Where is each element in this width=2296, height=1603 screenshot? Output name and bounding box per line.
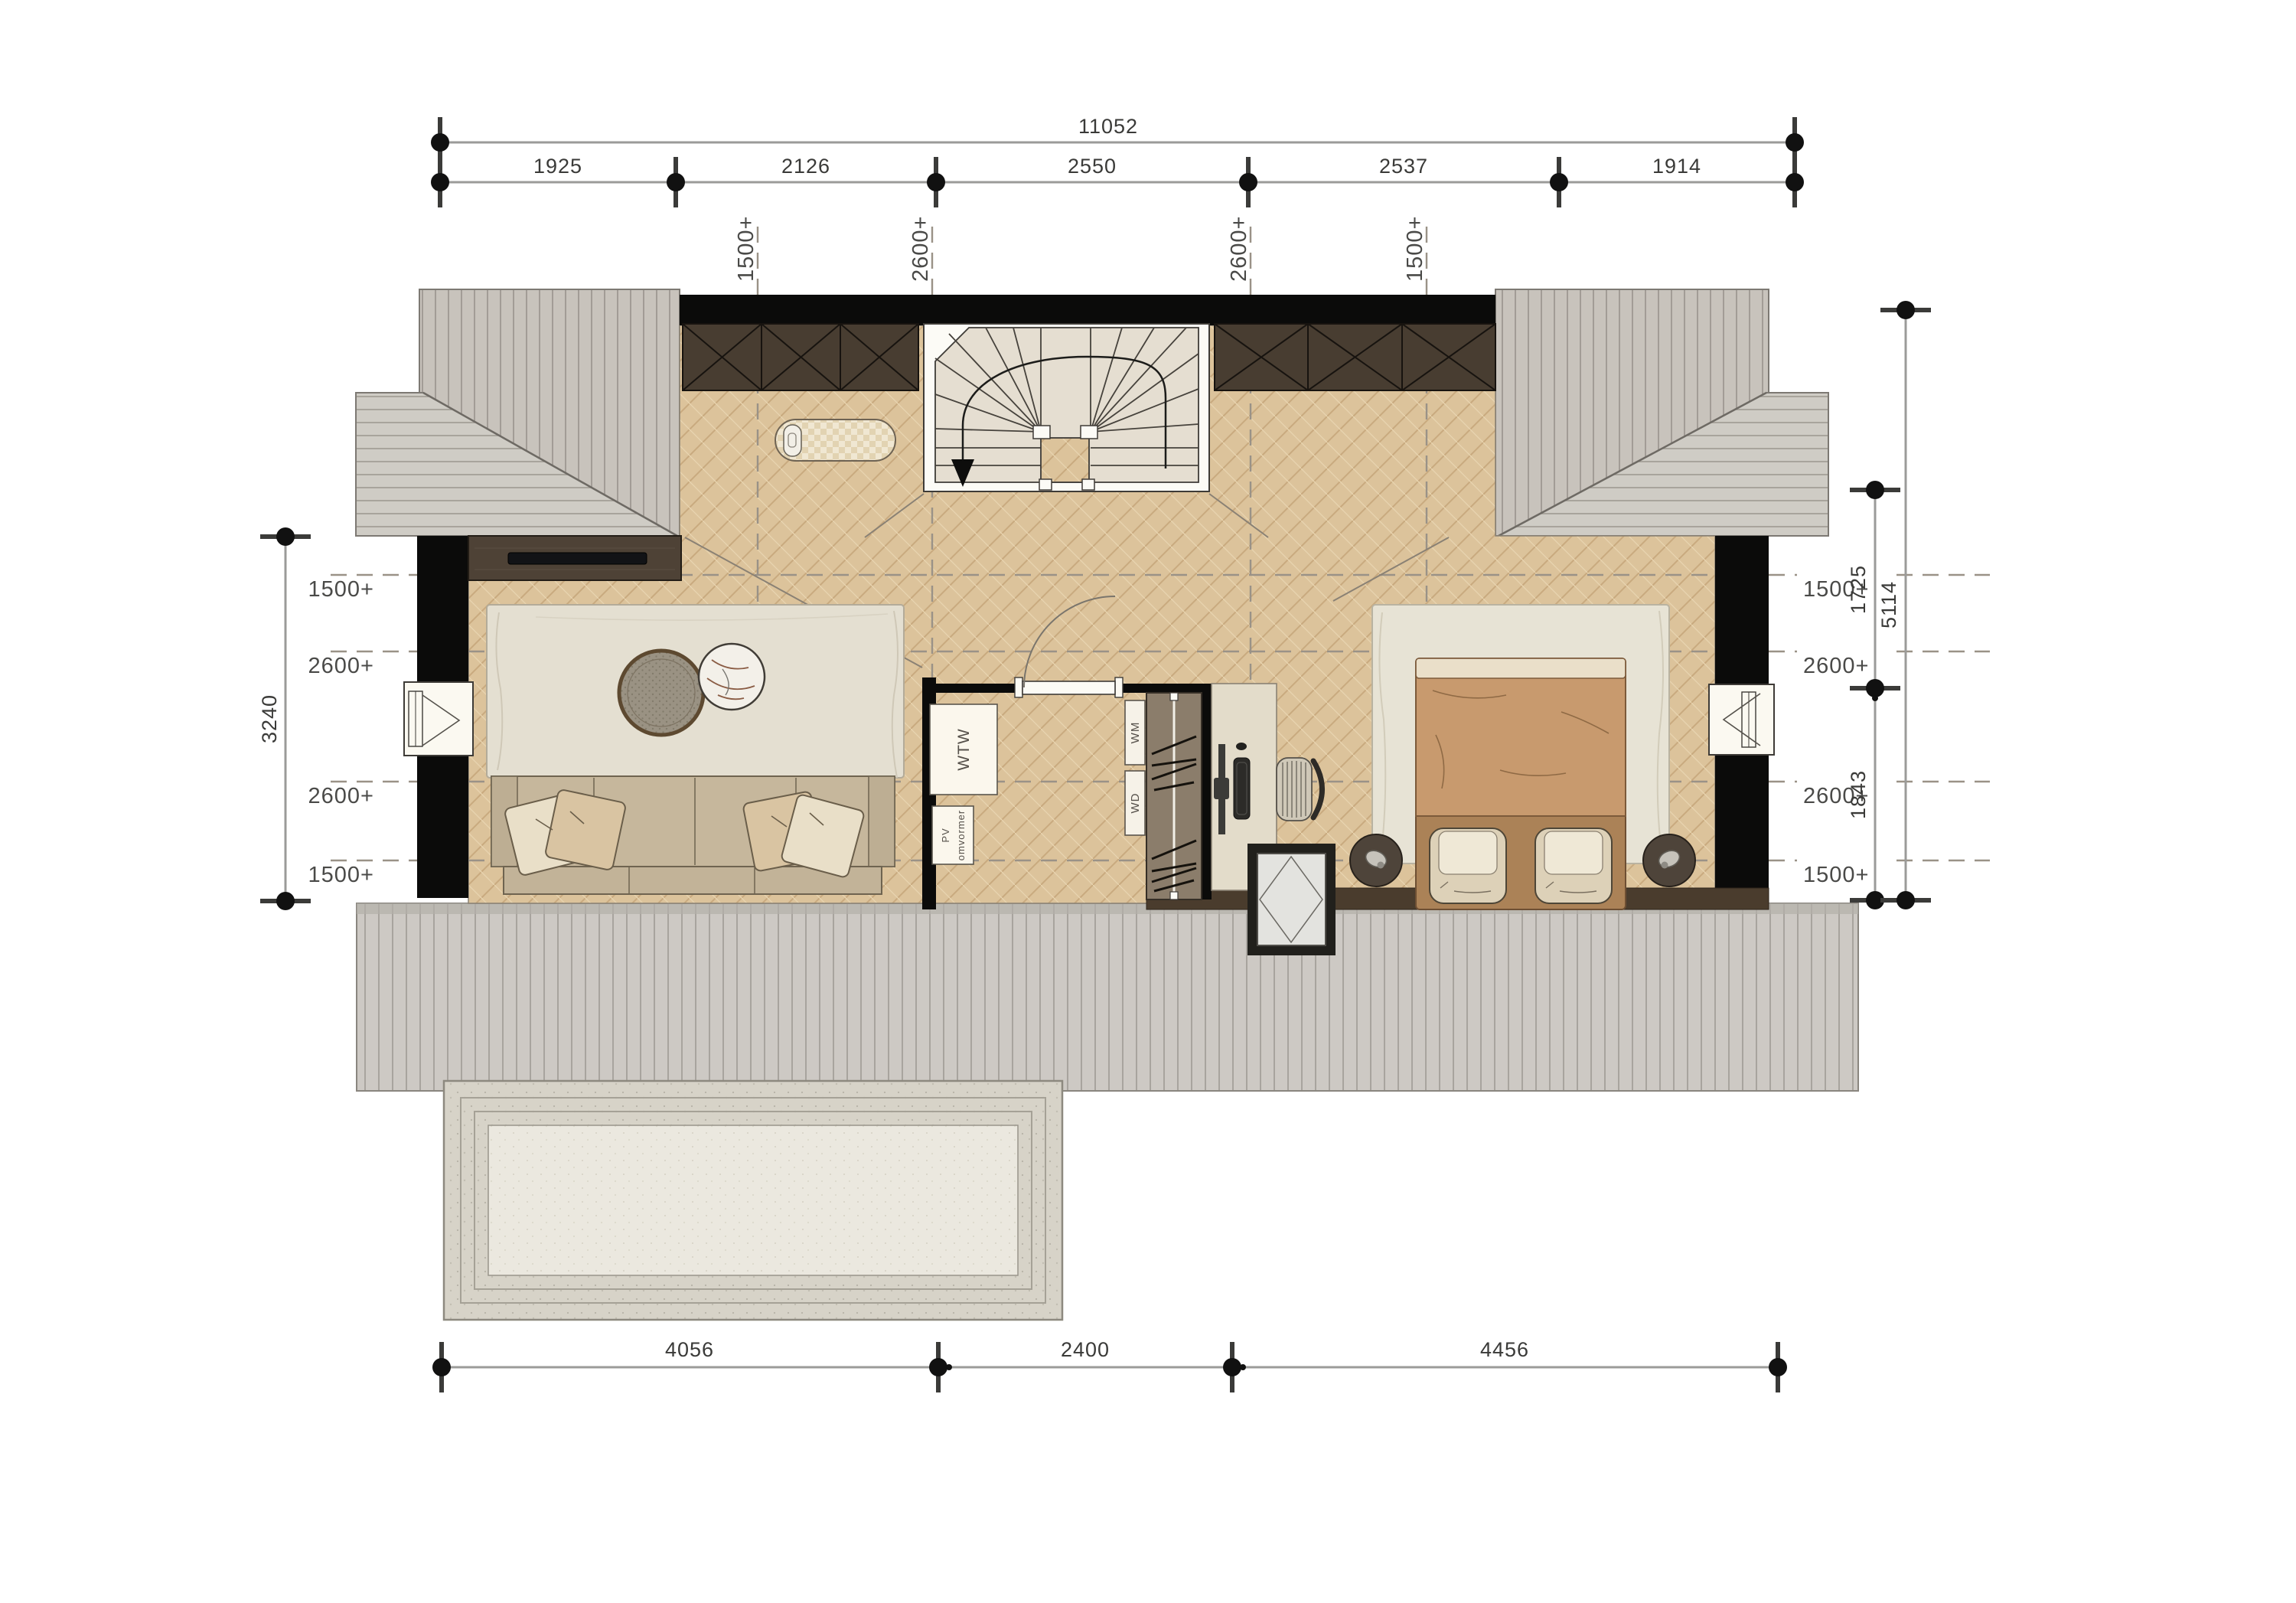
level-left-3: 2600+ [308,784,374,808]
level-top-1: 1500+ [734,216,758,282]
dim-bottom-seg-1: 4056 [665,1338,714,1361]
dim-top-seg-2: 2126 [781,155,830,178]
level-left-1: 1500+ [308,577,374,602]
wtw-label: WTW [955,728,973,770]
wall-wardrobe-right [1202,684,1212,899]
sideboard [468,536,681,580]
level-right-2: 2600+ [1803,654,1869,678]
nightstand-right [1643,834,1695,886]
pet-bed [775,420,895,461]
dimension-left: 3240 [258,537,308,901]
window-right [1709,684,1774,755]
wall-top [680,295,1495,325]
bed-pillow-left [1430,828,1506,903]
dim-top-seg-3: 2550 [1068,155,1117,178]
roof-bottom [357,903,1858,1091]
level-top-4: 1500+ [1403,216,1427,282]
dimension-chain-top: 11052 1925 2126 2550 2537 1914 [440,115,1795,196]
staircase [924,324,1209,491]
window-left [404,682,473,756]
dimension-chain-right: 1725 1843 5114 [1847,310,1906,900]
sofa [491,776,895,894]
mouse-icon [1236,743,1247,750]
bed [1416,658,1626,909]
level-left-2: 2600+ [308,654,374,678]
dim-right-seg-1: 1725 [1847,565,1870,614]
wall-tech-top-right [1123,684,1212,693]
wm-label: WM [1129,722,1142,744]
wd-label: WD [1129,793,1142,814]
wardrobe [1146,693,1202,899]
level-top-3: 2600+ [1227,216,1251,282]
closet-top-left [683,324,918,390]
floor-plan-page: 11052 1925 2126 2550 2537 1914 1500+ 260… [0,0,2296,1603]
side-table-rattan [619,651,703,735]
dim-top-seg-5: 1914 [1652,155,1701,178]
stair-void [1041,438,1089,482]
wall-tech-top-left [936,684,1021,693]
tv-icon [508,553,647,564]
dim-top-total: 11052 [1078,115,1138,138]
dim-right-total: 5114 [1877,581,1900,628]
pv-label-1: PV [940,828,951,842]
roof-window [1247,844,1336,955]
level-top-2: 2600+ [908,216,933,282]
bed-pillow-right [1535,828,1612,903]
pv-inverter [932,806,974,864]
door-leaf [1022,681,1115,694]
floor-plan-svg: 11052 1925 2126 2550 2537 1914 1500+ 260… [0,0,2296,1603]
ceiling-level-labels-top: 1500+ 2600+ 2600+ 1500+ [734,216,1427,295]
bedroom [1350,605,1695,909]
level-right-4: 1500+ [1803,863,1869,887]
coffee-table-marble [699,644,765,710]
roof-top-right [1495,289,1828,536]
dim-left-total: 3240 [258,694,281,743]
dim-top-seg-1: 1925 [533,155,582,178]
roof-top-left [356,289,680,536]
duvet [1416,677,1626,816]
dim-bottom-seg-3: 4456 [1480,1338,1529,1361]
dimension-chain-bottom: 4056 2400 4456 [442,1338,1778,1390]
nightstand-left [1350,834,1402,886]
dim-right-seg-2: 1843 [1847,770,1870,819]
terrace [444,1081,1062,1320]
dim-top-seg-4: 2537 [1379,155,1428,178]
level-left-4: 1500+ [308,863,374,887]
dim-bottom-seg-2: 2400 [1061,1338,1110,1361]
pv-label-2: omvormer [955,810,967,861]
closet-top-right [1215,324,1495,390]
